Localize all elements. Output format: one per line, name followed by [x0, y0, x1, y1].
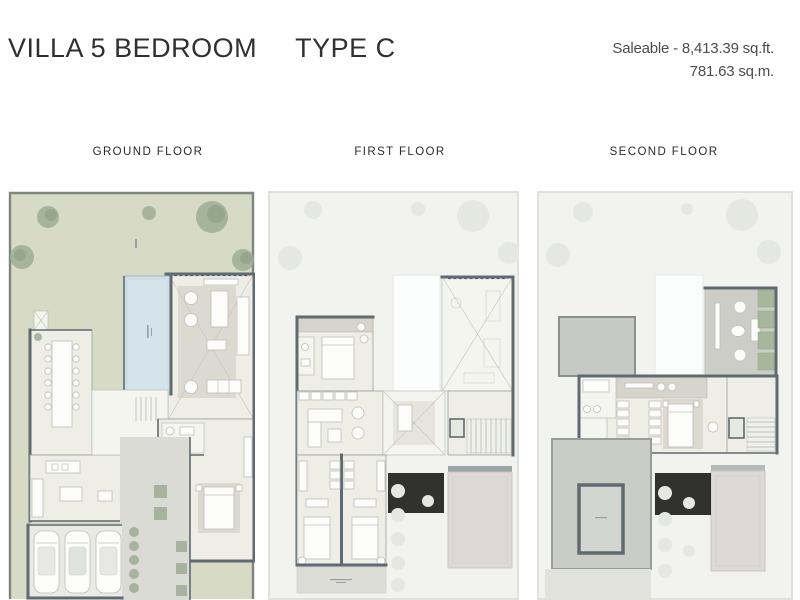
car — [34, 531, 59, 593]
first-floor-plan — [268, 191, 519, 600]
roof-terrace — [545, 439, 651, 599]
villa-type: TYPE C — [295, 33, 396, 64]
void-opening — [579, 485, 623, 553]
living-room — [166, 274, 254, 419]
car — [96, 531, 121, 593]
pool-void — [655, 275, 703, 376]
pool-void — [393, 275, 440, 392]
label-second-floor: SECOND FLOOR — [610, 146, 719, 158]
pool — [124, 276, 171, 394]
page-title: VILLA 5 BEDROOM TYPE C — [8, 33, 396, 64]
balcony — [297, 567, 386, 593]
solid-roof — [559, 317, 635, 376]
double-height-living — [442, 277, 513, 391]
upper-terrace — [705, 288, 776, 376]
lower-roof-strip — [545, 569, 651, 599]
upper-hall — [383, 391, 445, 455]
stair-block — [448, 391, 513, 455]
saleable-sqft: Saleable - 8,413.39 sq.ft. — [612, 37, 774, 60]
entry-court — [120, 437, 190, 600]
bedrooms-bottom — [297, 455, 386, 565]
ground-floor-plan — [8, 191, 255, 600]
garden-label-mark — [135, 239, 137, 248]
terrace — [711, 465, 765, 571]
saleable-sqm: 781.63 sq.m. — [612, 60, 774, 83]
second-floor-plan — [537, 191, 793, 600]
car — [65, 531, 90, 593]
label-ground-floor: GROUND FLOOR — [93, 146, 204, 158]
terrace — [448, 466, 512, 568]
label-first-floor: FIRST FLOOR — [354, 146, 445, 158]
page: VILLA 5 BEDROOM TYPE C Saleable - 8,413.… — [0, 0, 800, 600]
garage — [28, 525, 122, 599]
saleable-area: Saleable - 8,413.39 sq.ft. 781.63 sq.m. — [612, 37, 774, 83]
family-room — [297, 391, 383, 455]
villa-title: VILLA 5 BEDROOM — [8, 33, 257, 64]
